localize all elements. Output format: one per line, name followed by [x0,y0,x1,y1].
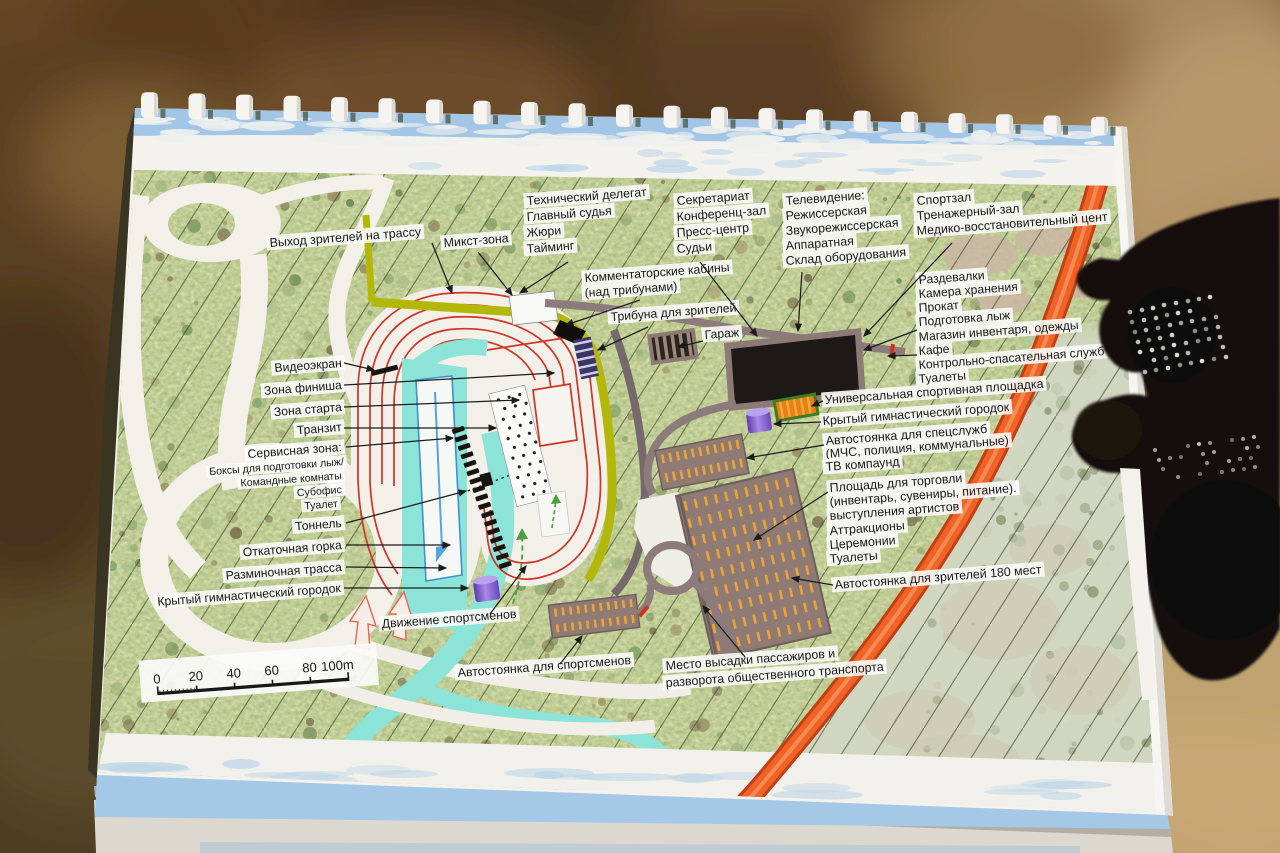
svg-text:40: 40 [226,665,242,681]
svg-text:100m: 100m [321,657,355,674]
svg-text:Туалет: Туалет [304,498,338,512]
svg-text:20: 20 [188,668,204,684]
svg-text:0: 0 [153,671,161,687]
svg-text:60: 60 [264,662,280,678]
svg-text:Гараж: Гараж [704,325,740,342]
svg-text:Жюри: Жюри [526,223,562,240]
svg-text:80: 80 [302,659,318,675]
svg-text:Судьи: Судьи [676,239,712,256]
